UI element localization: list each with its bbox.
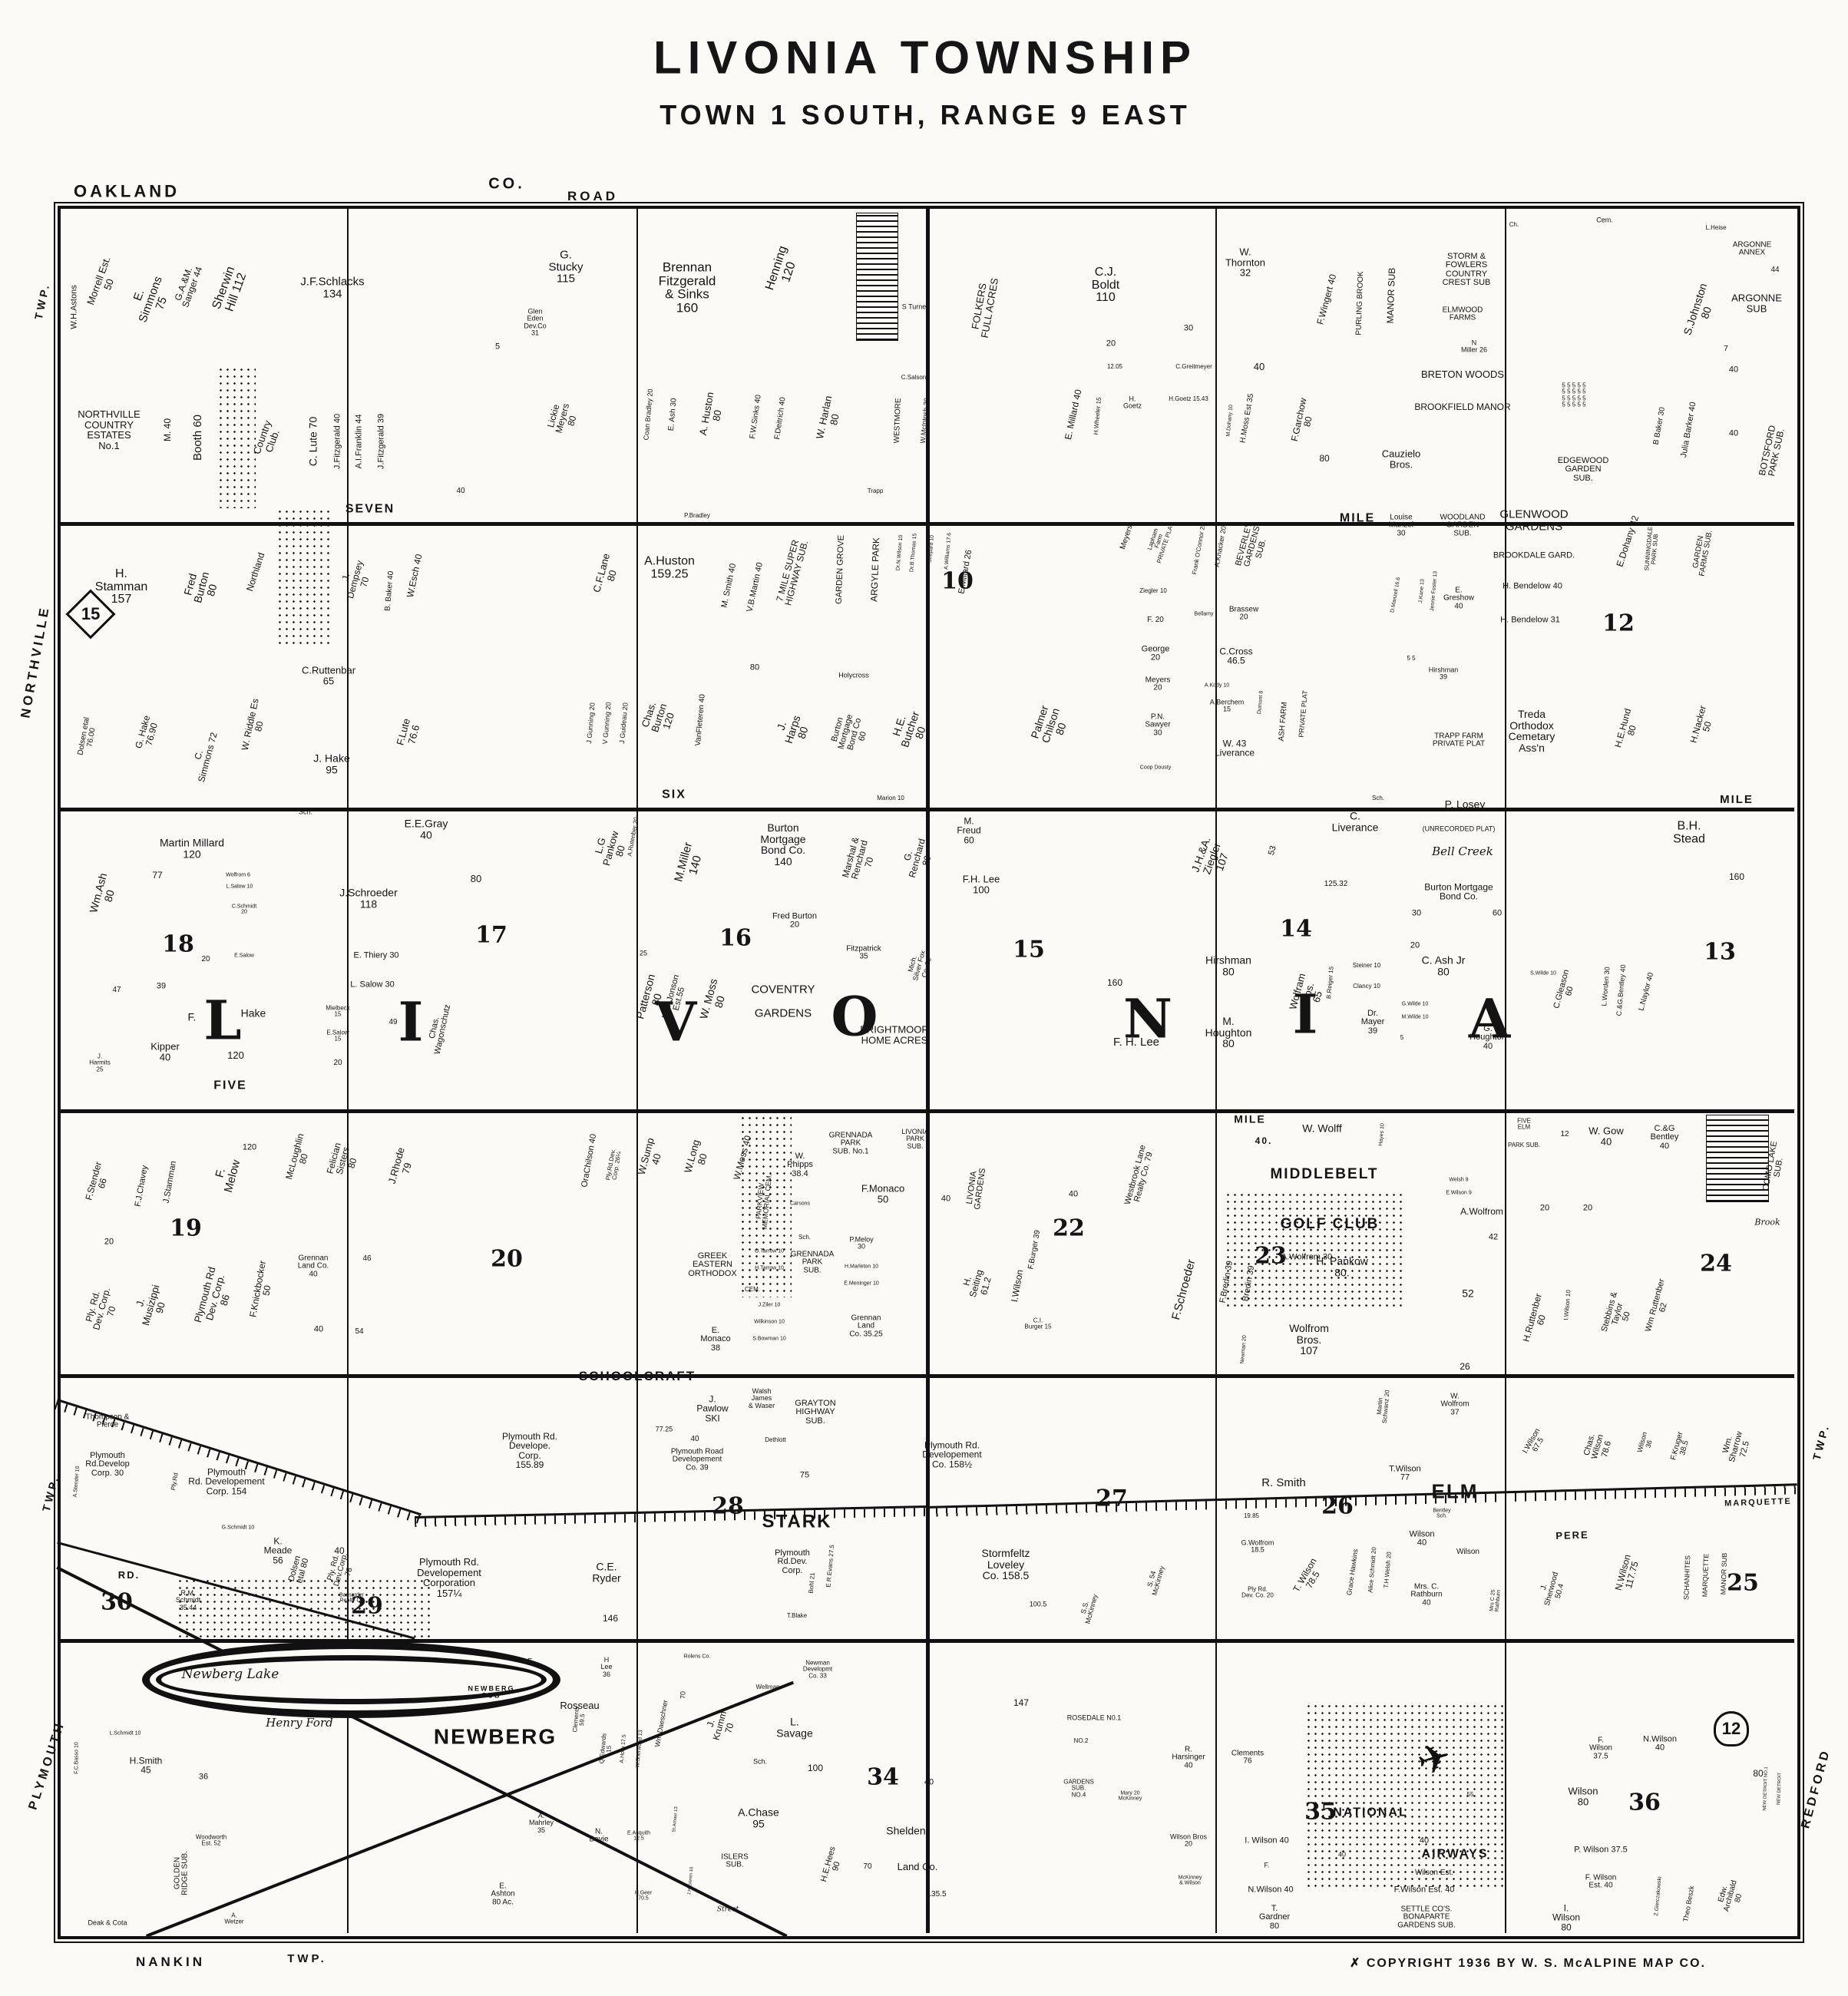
road-label: MILE	[1234, 1114, 1265, 1125]
parcel-label: ELMWOOD FARMS	[1443, 307, 1483, 323]
parcel-label: F.H. Lee 100	[963, 874, 1000, 894]
parcel-label: Sch.	[1372, 795, 1384, 801]
parcel-label: WOODLAND GARDEN SUB.	[1440, 514, 1486, 537]
edge-label: CO.	[488, 177, 525, 193]
parcel-label: ROSEDALE N0.1	[1067, 1714, 1122, 1721]
route-number: 15	[81, 604, 100, 624]
parcel-label: L.Schmidt 10	[110, 1730, 141, 1736]
parcel-label: Wolfrom Bros. 107	[1289, 1323, 1329, 1357]
parcel-label: Clancy 10	[1353, 983, 1380, 990]
road-label: MILE	[1720, 794, 1754, 806]
parcel-label: I. Wilson 80	[1552, 1903, 1580, 1932]
parcel-label: Brassew 20	[1229, 606, 1258, 623]
parcel-label: 77.25	[656, 1426, 673, 1433]
parcel-label: 49	[388, 1019, 397, 1026]
parcel-label: ISLERS SUB.	[721, 1854, 749, 1870]
parcel-label: Mielbeck 15	[326, 1006, 350, 1019]
parcel-label: R. Harsinger 40	[1172, 1746, 1205, 1770]
parcel-label: F.	[188, 1012, 197, 1023]
parcel-label: Wilson Est.	[1415, 1869, 1453, 1877]
parcel-label: Burton Mortgage Bond Co.	[1424, 883, 1493, 902]
parcel-label: J.Ziler 10	[759, 1302, 781, 1307]
parcel-label: A.Wolfrom 30	[1281, 1253, 1332, 1261]
parcel-label: (UNRECORDED PLAT)	[1423, 825, 1496, 832]
parcel-label: Rolens Co.	[684, 1654, 711, 1659]
parcel-label: E.Meninger 10	[844, 1281, 879, 1286]
edge-label: TWP.	[1811, 1422, 1832, 1461]
parcel-label: A.Huston 159.25	[644, 555, 695, 580]
parcel-label: BRIGHTMOOR HOME ACRES	[860, 1024, 929, 1045]
parcel-label: A.Berchem 15	[1210, 699, 1245, 714]
parcel-label: 160	[1107, 978, 1122, 987]
parcel-label: C.E. Ryder	[592, 1561, 620, 1583]
parcel-label: 52	[1462, 1288, 1474, 1300]
parcel-label: Wolfrom 6	[226, 872, 250, 877]
parcel-label: Grennan Land Co. 35.25	[849, 1314, 882, 1338]
parcel-label: N. Bovie	[589, 1829, 608, 1845]
parcel-label: C. Lute 70	[308, 417, 319, 467]
parcel-label: Treda Orthodox Cemetary Ass'n	[1509, 709, 1555, 753]
parcel-label: 44	[1770, 266, 1779, 274]
section-number: 13	[1704, 940, 1736, 963]
parcel-label: Dethlott	[765, 1437, 786, 1443]
parcel-label: C.Salson	[901, 375, 926, 381]
parcel-label: H. Goetz	[1123, 396, 1142, 411]
parcel-label: H. Bendelow 31	[1500, 616, 1560, 624]
parcel-label: Wilkinson 10	[754, 1319, 785, 1324]
parcel-label: Clements 76	[1231, 1750, 1264, 1766]
township-letter: I	[398, 995, 424, 1051]
parcel-label: F. Wilson 37.5	[1589, 1737, 1612, 1760]
parcel-label: E.Salow	[234, 953, 254, 958]
edge-label: TWP.	[33, 281, 51, 320]
section-number: 30	[101, 1590, 133, 1614]
parcel-label: 60	[1493, 909, 1502, 917]
parcel-label: 20	[104, 1238, 114, 1246]
road-label: FIVE	[213, 1080, 247, 1093]
section-number: 20	[491, 1247, 523, 1271]
parcel-label: E. Ashton 80 Ac.	[491, 1882, 514, 1906]
parcel-label: T. Gardner 80	[1259, 1905, 1290, 1931]
parcel-label: WESTMORE	[894, 398, 903, 443]
parcel-label: Plymouth Rd. Develope. Corp. 155.89	[502, 1432, 557, 1470]
plat-map-page: LIVONIA TOWNSHIP TOWN 1 SOUTH, RANGE 9 E…	[0, 0, 1848, 1996]
parcel-label: 40	[1069, 1190, 1078, 1198]
road-label: PERE	[1555, 1529, 1589, 1541]
parcel-label: Sch.	[798, 1234, 811, 1241]
parcel-label: 40	[1729, 429, 1738, 438]
township-letter: L	[203, 993, 241, 1049]
parcel-label: Coop Dousty	[1140, 765, 1171, 770]
parcel-label: 125.32	[1324, 881, 1348, 888]
parcel-label: C.I. Burger 15	[1024, 1318, 1051, 1331]
road-label: 40.	[1255, 1136, 1273, 1145]
parcel-label: J.Schroeder 118	[339, 887, 397, 909]
section-number: 34	[867, 1765, 899, 1789]
parcel-label: W. 43 Liverance	[1215, 739, 1255, 758]
parcel-label: 100	[808, 1763, 823, 1773]
parcel-label: ARGYLE PARK	[869, 537, 881, 602]
parcel-label: Cauzielo Bros.	[1382, 448, 1421, 469]
road-label: SIX	[662, 789, 686, 802]
parcel-label: F. H. Lee	[1113, 1036, 1159, 1049]
parcel-label: Carsons	[790, 1201, 810, 1206]
parcel-label: STORM & FOWLERS COUNTRY CREST SUB	[1443, 253, 1491, 288]
parcel-label: Hake	[241, 1008, 266, 1019]
parcel-label: 146	[603, 1614, 618, 1623]
parcel-label: J.Fitzgerald 39	[377, 414, 385, 469]
parcel-label: Marion 10	[877, 795, 904, 801]
parcel-label: Steiner 10	[1353, 963, 1380, 969]
parcel-label: ARGONNE ANNEX	[1733, 242, 1772, 258]
parcel-label: G.Schmidt 10	[222, 1525, 254, 1530]
parcel-label: 25	[640, 950, 647, 957]
parcel-label: F.	[1264, 1862, 1269, 1869]
parcel-label: E. Greshow 40	[1443, 587, 1474, 610]
parcel-label: 80	[1753, 1769, 1763, 1778]
parcel-label: L. Savage	[776, 1716, 812, 1738]
section-number: 14	[1280, 917, 1312, 940]
parcel-label: Plymouth Rd. Developement Co. 158½	[922, 1440, 981, 1469]
parcel-label: Wilson	[1456, 1548, 1479, 1556]
parcel-label: H.Goetz 15.43	[1169, 396, 1208, 402]
parcel-label: Bentley Sch.	[1433, 1509, 1450, 1520]
parcel-label: F.Wilson Est. 40	[1394, 1885, 1455, 1894]
parcel-label: C. Liverance	[1332, 810, 1379, 832]
parcel-label: S.Wilde 10	[1530, 970, 1556, 976]
place-label: NATIONAL	[1333, 1807, 1407, 1820]
parcel-label: Stormfeltz Loveley Co. 158.5	[981, 1548, 1030, 1581]
parcel-label: SETTLE CO'S. BONAPARTE GARDENS SUB.	[1397, 1905, 1456, 1929]
parcel-label: W. Gow 40	[1588, 1125, 1624, 1146]
parcel-label: McKinney & Wilson	[1179, 1875, 1202, 1887]
parcel-label: GRENNADA PARK SUB. No.1	[829, 1132, 873, 1155]
section-number: 25	[1727, 1571, 1759, 1594]
parcel-label: W. Wolff	[1302, 1123, 1342, 1135]
place-label: NEWBERG SUB	[468, 1686, 515, 1700]
parcel-label: C.J. Boldt 110	[1092, 266, 1119, 305]
parcel-label: 70	[863, 1863, 871, 1871]
parcel-label: CEM.	[745, 1287, 760, 1293]
parcel-label: Woodworth Est. 52	[196, 1835, 226, 1848]
parcel-label: P.Meloy 30	[849, 1237, 873, 1251]
parcel-label: Deak & Cota	[88, 1919, 127, 1926]
parcel-label: Meyers 20	[1145, 677, 1171, 693]
parcel-label: 19.85	[1244, 1513, 1259, 1519]
parcel-label: C.Cross 46.5	[1219, 647, 1252, 666]
parcel-label: FIVE ELM	[1517, 1119, 1531, 1132]
parcel-label: A.Chase 95	[738, 1806, 779, 1829]
parcel-label: Q.Edwards 15	[599, 1733, 614, 1765]
parcel-label: Plymouth Road Developement Co. 39	[671, 1448, 723, 1472]
parcel-label: A. Mahrley 35	[529, 1813, 554, 1834]
parcel-label: 12	[1560, 1131, 1569, 1138]
parcel-label: T.Blake	[787, 1613, 807, 1619]
parcel-label: 36	[199, 1773, 208, 1781]
parcel-label: Land Co.	[898, 1862, 938, 1872]
section-number: 27	[1096, 1486, 1128, 1510]
parcel-label: 100.5	[1030, 1601, 1047, 1608]
parcel-label: G. Houghton 40	[1469, 1025, 1506, 1051]
section-number: 28	[712, 1494, 744, 1518]
parcel-label: 40	[1254, 362, 1265, 372]
parcel-label: Dr. Mayer 39	[1361, 1010, 1385, 1036]
parcel-label: Mrs C 25 Rathburn	[1489, 1589, 1503, 1612]
parcel-label: Sch.	[299, 808, 312, 815]
parcel-label: H.Geer 70.5	[635, 1891, 653, 1902]
parcel-label: T.Wilson 77	[1389, 1466, 1421, 1483]
parcel-label: C.Schmidt 20	[232, 904, 256, 916]
section-line	[1505, 207, 1506, 1933]
parcel-label: 20	[201, 956, 210, 963]
parcel-label: C.Greitmeyer	[1175, 364, 1212, 370]
place-label: STARK	[762, 1513, 832, 1532]
parcel-label: BROOKFIELD MANOR	[1414, 402, 1510, 411]
parcel-label: J. Hake 95	[313, 752, 349, 775]
parcel-label: 40	[1729, 365, 1738, 374]
parcel-label: G. Stucky 115	[548, 249, 583, 286]
parcel-label: BROOKDALE GARD.	[1493, 551, 1575, 560]
script-label: Brook	[1754, 1218, 1780, 1226]
parcel-label: F.Monaco 50	[861, 1183, 904, 1204]
section-line	[926, 207, 930, 1933]
parcel-label: E.Asquith 12.5	[627, 1831, 650, 1842]
parcel-label: 47	[112, 986, 121, 994]
parcel-label: Welsh 9	[1449, 1177, 1468, 1182]
parcel-label: F. 20	[1147, 616, 1164, 624]
parcel-label: W.H.Astons	[70, 285, 78, 329]
parcel-label: H.Smith 45	[130, 1756, 163, 1776]
parcel-label: 26	[1460, 1362, 1469, 1371]
parcel-label: N.Wilson 40	[1643, 1736, 1677, 1753]
parcel-label: Walsh James & Waser	[749, 1388, 775, 1409]
parcel-label: J. Harmits 25	[89, 1054, 111, 1073]
parcel-label: F.C.Basso 10	[74, 1742, 79, 1774]
parcel-label: 75	[800, 1471, 809, 1479]
parcel-label: Plymouth Rd.Develop Corp. 30	[85, 1452, 129, 1478]
parcel-label: W. Thornton 32	[1225, 247, 1265, 279]
parcel-label: 70	[679, 1691, 687, 1699]
parcel-label: GRAYTON HIGHWAY SUB.	[795, 1400, 835, 1426]
parcel-label: C.Ruttenbar 65	[302, 665, 355, 686]
parcel-label: C.&G Bentley 40	[1651, 1125, 1679, 1151]
parcel-label: Wellman	[756, 1684, 780, 1690]
parcel-label: E.Salow 15	[326, 1030, 349, 1043]
parcel-label: PARK SUB.	[1508, 1142, 1540, 1148]
parcel-label: 20	[1540, 1204, 1549, 1212]
parcel-label: TRAPP FARM PRIVATE PLAT	[1433, 733, 1485, 749]
parcel-label: Fred Burton 20	[772, 913, 817, 930]
parcel-label: Cem.	[1596, 216, 1613, 223]
edge-label: REDFORD	[1800, 1747, 1833, 1830]
parcel-label: Ch.	[1509, 222, 1519, 228]
parcel-label: 77	[152, 871, 162, 880]
parcel-label: SCHANHITES	[1683, 1555, 1691, 1600]
parcel-label: 20	[1583, 1204, 1592, 1212]
parcel-label: 7	[1724, 345, 1728, 353]
parcel-label: H. Stamman 157	[95, 568, 147, 606]
parcel-label: Martin Millard 120	[160, 837, 224, 859]
parcel-label: ARGONNE SUB	[1731, 292, 1782, 313]
parcel-label: Plymouth Rd.Dev. Corp.	[775, 1549, 810, 1575]
section-number: 12	[1602, 611, 1635, 635]
parcel-label: H. Bendelow 40	[1503, 582, 1562, 590]
parcel-label: Plymouth Rd. Developement Corporation 15…	[417, 1557, 481, 1598]
parcel-label: Brennan Fitzgerald & Sinks 160	[659, 261, 716, 316]
parcel-label: 5	[1400, 1035, 1403, 1041]
place-label: MIDDLEBELT	[1270, 1167, 1378, 1182]
parcel-label: GREEK EASTERN ORTHODOX	[688, 1252, 736, 1278]
parcel-label: A.I.Franklin 44	[355, 415, 363, 469]
parcel-label: COVENTRY GARDENS	[751, 984, 815, 1020]
parcel-label: N.Wilson 40	[1248, 1885, 1293, 1894]
place-label: AIRWAYS	[1422, 1849, 1489, 1862]
script-label: Henry Ford	[266, 1717, 332, 1730]
parcel-label: 20	[333, 1059, 342, 1067]
parcel-label: 40	[1338, 1851, 1346, 1858]
parcel-label: J. Pawlow SKI	[696, 1394, 728, 1423]
parcel-label: 147	[1013, 1698, 1029, 1707]
parcel-label: A. Wetzer	[224, 1913, 243, 1926]
parcel-label: W. Wolfrom 37	[1440, 1393, 1469, 1416]
section-number: 17	[475, 923, 507, 947]
parcel-label: K. Meade 56	[264, 1536, 293, 1565]
parcel-label: Mary 20 McKinney	[1119, 1791, 1142, 1803]
parcel-label: W. Phipps 38.4	[787, 1152, 813, 1178]
edge-label: TWP.	[287, 1953, 327, 1965]
parcel-label: BRETON WOODS	[1421, 369, 1504, 380]
parcel-label: Hirshman 80	[1205, 954, 1251, 977]
parcel-label: A.Kody 10	[1205, 682, 1229, 688]
parcel-label: 20	[1106, 339, 1116, 348]
parcel-label: 5 5 5 5 5 5 5 5 5 5 5 5 5 5 5 5 5 5 5 5	[1562, 382, 1585, 408]
parcel-label: MANOR SUB	[1386, 267, 1397, 323]
parcel-label: Ply Rd. Dev. Co. 20	[1241, 1587, 1274, 1600]
parcel-label: 120	[227, 1050, 244, 1061]
section-line	[1215, 207, 1217, 1933]
script-label: Bell Creek	[1432, 846, 1493, 858]
place-label: ELM	[1432, 1481, 1479, 1502]
parcel-label: R.M. Schmidt 35.44	[176, 1590, 201, 1611]
section-number: 36	[1628, 1790, 1661, 1814]
map-title: LIVONIA TOWNSHIP	[653, 31, 1197, 84]
parcel-label: Shelden	[886, 1826, 925, 1837]
parcel-label: NO.2	[1074, 1738, 1089, 1744]
parcel-label: M. Freud 60	[957, 816, 980, 844]
parcel-label: I. Wilson 40	[1245, 1836, 1288, 1845]
script-label: Newberg Lake	[182, 1668, 279, 1682]
edge-label: NORTHVILLE	[18, 604, 51, 719]
parcel-label: 80	[1319, 454, 1329, 463]
road-label: MILE	[1340, 513, 1375, 526]
parcel-label: B.H. Stead	[1673, 820, 1705, 845]
parcel-label: F. Wilson Est. 40	[1585, 1875, 1617, 1891]
parcel-label: Burton Mortgage Bond Co. 140	[760, 822, 805, 867]
parcel-label: S.Bowman 10	[752, 1336, 786, 1341]
parcel-label: EDGEWOOD GARDEN SUB.	[1558, 457, 1609, 483]
parcel-label: P. Wilson 37.5	[1574, 1846, 1628, 1854]
parcel-label: 40	[456, 487, 464, 495]
parcel-label: 160	[1729, 872, 1744, 881]
parcel-label: 30	[1184, 324, 1193, 332]
parcel-label: MARQUETTE	[1701, 1554, 1710, 1598]
hatched-sub-block	[856, 213, 898, 341]
parcel-label: Sch.	[753, 1758, 767, 1765]
parcel-label: 40	[1420, 1836, 1429, 1845]
parcel-label: Trapp	[868, 488, 884, 494]
section-number: 26	[1321, 1494, 1354, 1518]
parcel-label: Kipper 40	[150, 1041, 180, 1062]
road-label: RD.	[118, 1570, 140, 1581]
parcel-label: Clements 59.5	[572, 1706, 587, 1733]
parcel-label: Booth 60	[192, 415, 204, 461]
copyright-notice: ✗ COPYRIGHT 1936 BY W. S. McALPINE MAP C…	[1350, 1955, 1706, 1971]
parcel-label: M.Wilde 10	[1401, 1014, 1428, 1019]
parcel-label: 135.5	[927, 1891, 946, 1899]
parcel-label: M. Houghton 80	[1205, 1016, 1252, 1049]
section-number: 16	[719, 926, 752, 950]
parcel-label: E. Thiery 30	[353, 951, 398, 960]
parcel-label: O.Tarrow 10	[755, 1248, 784, 1254]
parcel-label: Fitzpatrick 35	[846, 946, 881, 962]
parcel-label: 40	[941, 1195, 950, 1203]
parcel-label: P.Bradley	[684, 513, 710, 519]
parcel-label: 80	[750, 663, 759, 672]
parcel-label: 12.05	[1107, 364, 1122, 370]
parcel-label: M. 40	[163, 418, 172, 441]
parcel-label: E.E.Gray 40	[405, 818, 448, 840]
stippled-area	[276, 508, 332, 646]
parcel-label: 5	[495, 342, 500, 351]
parcel-label: R. Smith	[1261, 1477, 1306, 1489]
parcel-label: 40	[690, 1436, 699, 1443]
parcel-label: Wilson 80	[1568, 1786, 1598, 1806]
map-subtitle: TOWN 1 SOUTH, RANGE 9 EAST	[660, 99, 1190, 131]
parcel-label: 54	[355, 1328, 363, 1336]
parcel-label: 55	[1467, 1792, 1474, 1798]
parcel-label: 40	[924, 1778, 934, 1786]
stippled-area	[217, 366, 256, 508]
parcel-label: GARDENS SUB. NO.4	[1063, 1780, 1094, 1799]
parcel-label: C. Ash Jr 80	[1422, 954, 1466, 977]
parcel-label: Wilson Bros 20	[1170, 1834, 1207, 1849]
edge-label: NANKIN	[136, 1955, 205, 1969]
parcel-label: J.F.Schlacks 134	[300, 276, 364, 299]
parcel-label: Hirshman 39	[1429, 667, 1459, 682]
parcel-label: George 20	[1142, 646, 1170, 663]
parcel-label: 42	[1489, 1233, 1498, 1241]
parcel-label: Mrs. C. Rathburn 40	[1410, 1583, 1442, 1607]
parcel-label: Holycross	[838, 672, 869, 679]
parcel-label: F	[527, 1658, 532, 1666]
parcel-label: 46	[362, 1255, 371, 1263]
place-label: GOLF CLUB	[1281, 1217, 1380, 1232]
edge-label: OAKLAND	[74, 183, 180, 201]
section-number: 24	[1700, 1251, 1732, 1275]
parcel-label: Glen Eden Dev.Co 31	[524, 308, 546, 336]
parcel-label: Grennan Land Co. 40	[298, 1254, 329, 1278]
parcel-label: A.Wolfrom	[1460, 1207, 1503, 1216]
parcel-label: GOLDEN RIDGE SUB.	[174, 1851, 190, 1895]
parcel-label: G.Wilde 10	[1402, 1001, 1429, 1006]
parcel-label: Ziegler 10	[1139, 588, 1167, 594]
parcel-label: H.Tarrow 10	[755, 1265, 784, 1271]
parcel-label: Newman Developmt Co. 33	[803, 1661, 832, 1680]
parcel-label: G.Wolfrom 18.5	[1241, 1540, 1274, 1555]
road-label: SCHOOLCRAFT	[579, 1370, 696, 1383]
parcel-label: Plymouth Rd. Developement Corp. 154	[188, 1467, 264, 1495]
parcel-label: P.N. Sawyer 30	[1145, 713, 1170, 737]
